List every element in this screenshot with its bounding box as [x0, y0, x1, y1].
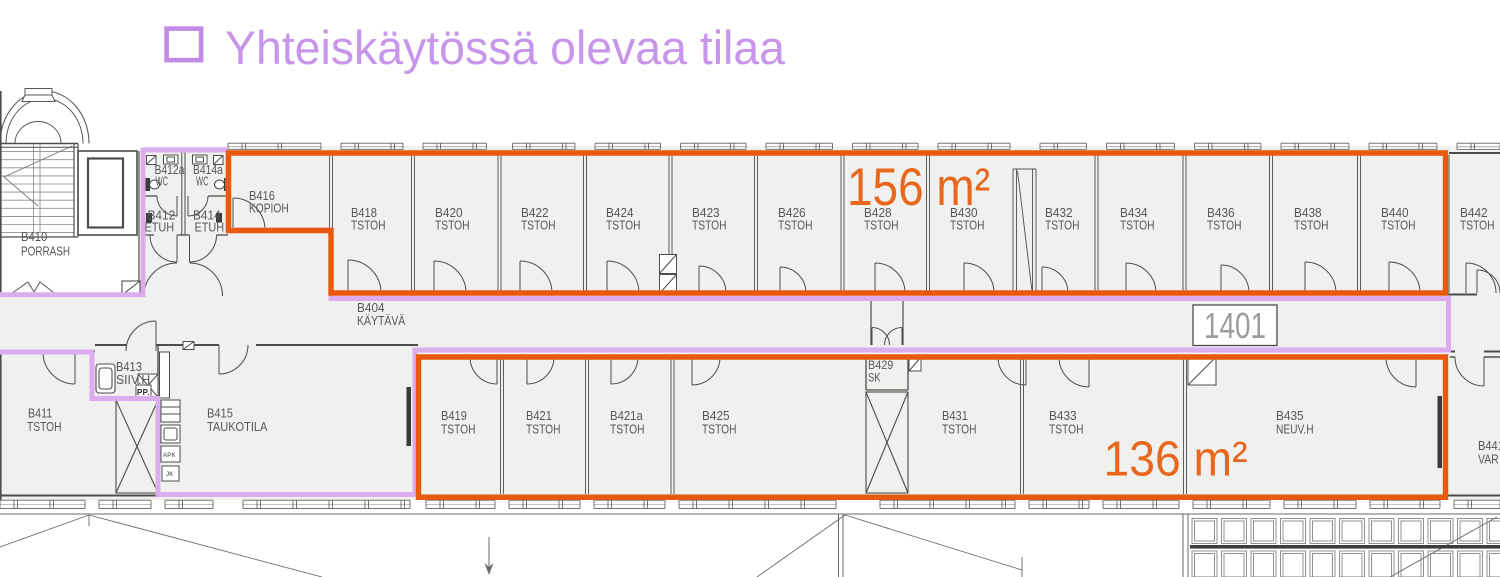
svg-text:TSTOH: TSTOH: [702, 422, 737, 437]
svg-text:TSTOH: TSTOH: [441, 422, 476, 437]
svg-text:TSTOH: TSTOH: [1049, 422, 1084, 437]
svg-text:TSTOH: TSTOH: [692, 218, 727, 233]
svg-text:TSTOH: TSTOH: [526, 422, 561, 437]
svg-text:TSTOH: TSTOH: [521, 218, 556, 233]
svg-text:B410: B410: [21, 229, 47, 244]
svg-text:TSTOH: TSTOH: [606, 218, 641, 233]
svg-text:136 m²: 136 m²: [1104, 432, 1248, 487]
svg-text:TSTOH: TSTOH: [1294, 218, 1329, 233]
svg-text:TSTOH: TSTOH: [778, 218, 813, 233]
svg-text:JK: JK: [166, 472, 174, 478]
svg-text:1401: 1401: [1204, 305, 1266, 346]
svg-text:KÄYTÄVÄ: KÄYTÄVÄ: [357, 313, 405, 328]
svg-text:TAUKOTILA: TAUKOTILA: [207, 419, 268, 434]
svg-text:TSTOH: TSTOH: [1045, 218, 1080, 233]
svg-text:PORRASH: PORRASH: [21, 244, 70, 259]
svg-text:TSTOH: TSTOH: [1460, 218, 1495, 233]
svg-text:ETUH: ETUH: [145, 220, 175, 235]
svg-text:TSTOH: TSTOH: [1381, 218, 1416, 233]
svg-text:PP.: PP.: [137, 388, 150, 397]
svg-text:TSTOH: TSTOH: [435, 218, 470, 233]
svg-text:TSTOH: TSTOH: [351, 218, 386, 233]
svg-text:TSTOH: TSTOH: [950, 218, 985, 233]
svg-text:APK: APK: [163, 453, 176, 459]
svg-text:Yhteiskäytössä olevaa tilaa: Yhteiskäytössä olevaa tilaa: [225, 22, 786, 75]
svg-text:156 m²: 156 m²: [847, 158, 990, 217]
svg-text:ETUH: ETUH: [195, 220, 225, 235]
svg-text:NEUV.H: NEUV.H: [1276, 422, 1314, 437]
svg-text:KOPIOH: KOPIOH: [249, 201, 289, 216]
svg-text:TSTOH: TSTOH: [942, 422, 977, 437]
svg-text:WC: WC: [196, 174, 209, 189]
svg-text:TSTOH: TSTOH: [1120, 218, 1155, 233]
svg-text:TSTOH: TSTOH: [610, 422, 645, 437]
svg-text:WC: WC: [156, 174, 169, 189]
svg-text:SK: SK: [868, 371, 881, 385]
svg-text:TSTOH: TSTOH: [1207, 218, 1242, 233]
svg-text:VAR: VAR: [1478, 452, 1499, 467]
svg-text:SIIV.H: SIIV.H: [116, 372, 150, 387]
svg-text:TSTOH: TSTOH: [27, 419, 62, 434]
svg-text:TSTOH: TSTOH: [864, 218, 899, 233]
